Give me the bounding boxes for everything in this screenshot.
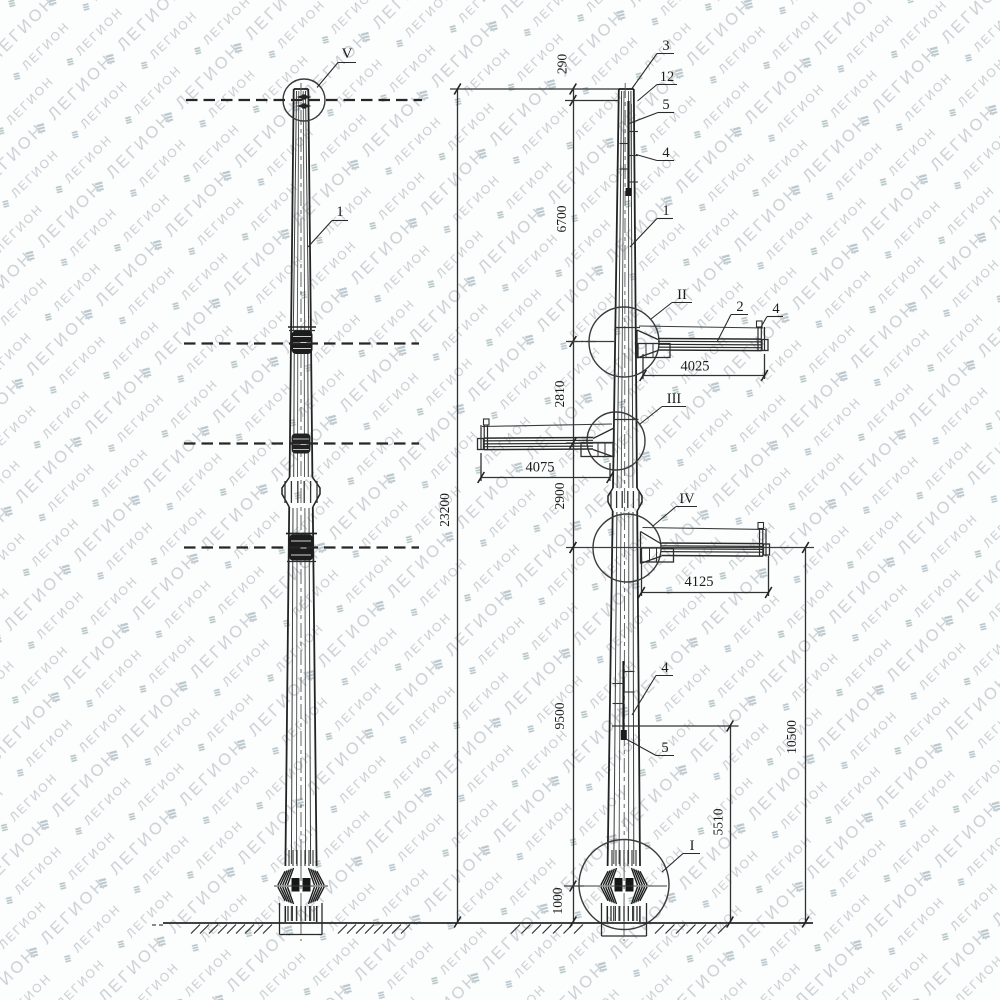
svg-text:12: 12 bbox=[660, 69, 675, 85]
svg-text:5510: 5510 bbox=[711, 808, 726, 835]
svg-text:4075: 4075 bbox=[526, 460, 555, 476]
svg-text:1: 1 bbox=[336, 204, 343, 220]
svg-text:2810: 2810 bbox=[552, 380, 567, 407]
svg-text:II: II bbox=[677, 287, 687, 303]
svg-text:6700: 6700 bbox=[554, 205, 569, 232]
svg-text:5: 5 bbox=[662, 97, 669, 113]
svg-text:3: 3 bbox=[662, 38, 669, 54]
svg-text:4125: 4125 bbox=[685, 574, 714, 590]
svg-text:5: 5 bbox=[661, 740, 668, 756]
svg-text:1: 1 bbox=[662, 203, 669, 219]
svg-text:9500: 9500 bbox=[552, 702, 567, 729]
svg-text:4: 4 bbox=[772, 301, 780, 317]
svg-text:V: V bbox=[342, 46, 353, 62]
svg-text:290: 290 bbox=[555, 54, 570, 75]
svg-text:I: I bbox=[690, 838, 695, 854]
svg-text:4025: 4025 bbox=[681, 359, 710, 375]
svg-text:4: 4 bbox=[661, 660, 669, 676]
svg-text:10500: 10500 bbox=[784, 720, 799, 754]
svg-text:1000: 1000 bbox=[550, 887, 565, 914]
svg-text:4: 4 bbox=[662, 145, 670, 161]
svg-text:2: 2 bbox=[736, 299, 743, 315]
svg-text:2900: 2900 bbox=[552, 482, 567, 509]
svg-text:III: III bbox=[667, 391, 682, 407]
svg-text:IV: IV bbox=[679, 491, 695, 507]
svg-text:23200: 23200 bbox=[437, 493, 452, 527]
